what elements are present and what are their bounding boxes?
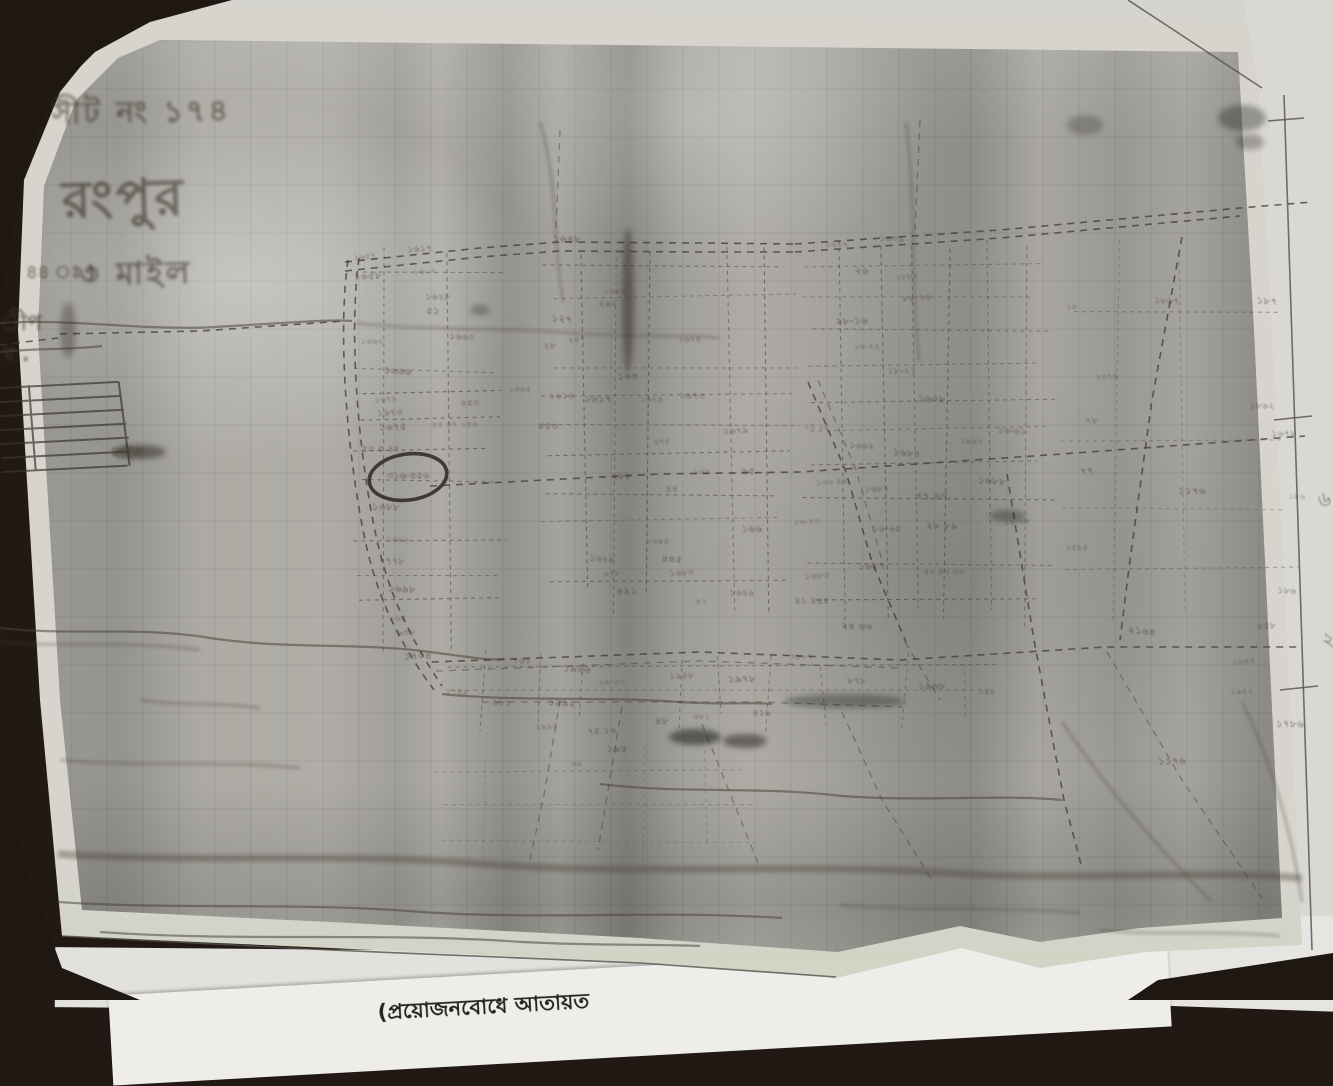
left-margin-fragment-2: র . — [4, 340, 30, 373]
handwritten-sheet-number: সীট নং ১৭৪ — [52, 86, 232, 140]
printed-text: (প্রয়োজনবোধে আতায়ত — [377, 985, 590, 1032]
map-content-area — [0, 0, 1333, 1000]
handwritten-scale-prefix: ৪৪ ঃ ) — [26, 258, 95, 289]
right-margin-pen-mark-1: ৬ — [1318, 485, 1331, 518]
right-margin-pen-mark-2: ২ — [1322, 625, 1333, 658]
left-margin-fragment-1: ীপ — [0, 306, 42, 343]
circled-plot-number: ৩১৬-৪৫৬ — [387, 469, 430, 486]
handwritten-place-name: রংপুর — [61, 156, 187, 246]
photo-of-cadastral-map: { "annotations": { "sheet_no": "সীট নং ১… — [0, 0, 1333, 1000]
scale-bar-label: মাইল — [112, 442, 144, 467]
